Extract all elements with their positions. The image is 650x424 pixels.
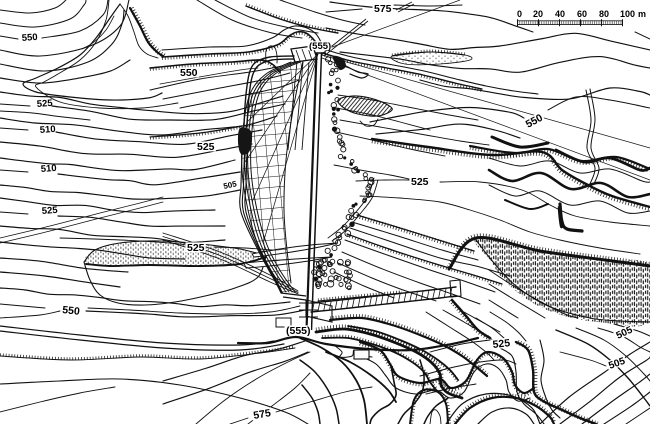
- svg-text:m: m: [638, 9, 646, 19]
- svg-text:525: 525: [36, 98, 53, 110]
- svg-text:550: 550: [180, 67, 198, 79]
- svg-text:(555): (555): [309, 41, 331, 52]
- svg-text:(555): (555): [286, 325, 311, 337]
- svg-text:0: 0: [517, 9, 522, 19]
- svg-text:575: 575: [374, 3, 392, 15]
- svg-text:80: 80: [599, 9, 609, 19]
- svg-text:40: 40: [555, 9, 565, 19]
- svg-text:20: 20: [533, 9, 543, 19]
- svg-text:525: 525: [187, 242, 205, 254]
- svg-text:525: 525: [197, 141, 215, 153]
- svg-text:550: 550: [21, 32, 38, 44]
- svg-text:550: 550: [62, 304, 81, 318]
- svg-text:510: 510: [40, 163, 57, 175]
- svg-text:100: 100: [620, 9, 635, 19]
- svg-text:525: 525: [492, 337, 511, 351]
- svg-text:60: 60: [577, 9, 587, 19]
- svg-text:525: 525: [411, 176, 429, 188]
- svg-text:525: 525: [41, 205, 58, 217]
- svg-text:510: 510: [39, 124, 56, 136]
